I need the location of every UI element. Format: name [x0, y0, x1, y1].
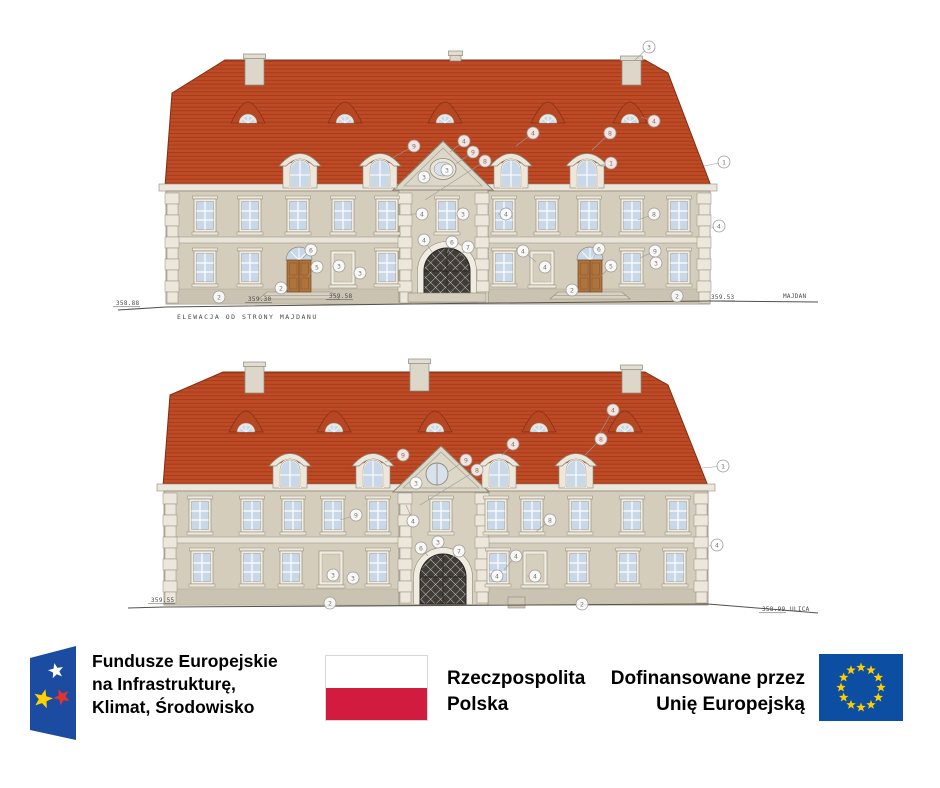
- window: [666, 248, 692, 287]
- callout-number: 9: [401, 451, 405, 459]
- callout-number: 4: [514, 552, 518, 560]
- chimney-cap: [244, 54, 266, 59]
- window: [192, 196, 218, 235]
- window: [189, 548, 215, 587]
- callout-number: 4: [504, 210, 508, 218]
- window: [619, 196, 645, 235]
- window: [565, 548, 591, 587]
- callout-number: 1: [722, 158, 726, 166]
- callout-number: 3: [351, 574, 355, 582]
- callout-number: 4: [411, 517, 415, 525]
- window: [237, 196, 263, 235]
- callout-number: 1: [721, 462, 725, 470]
- chimney-cap: [621, 56, 643, 61]
- callout-number: 9: [354, 511, 358, 519]
- callout-number: 3: [445, 166, 449, 174]
- callout-number: 3: [331, 571, 335, 579]
- poland-flag: [325, 655, 428, 721]
- funding-logos-bar: Fundusze Europejskie na Infrastrukturę, …: [0, 632, 940, 788]
- callout-number: 9: [471, 148, 475, 156]
- callout-number: 4: [495, 572, 499, 580]
- window: [662, 548, 688, 587]
- window: [285, 196, 311, 235]
- callout-number: 4: [531, 129, 535, 137]
- callout-number: 4: [652, 117, 656, 125]
- elevation-mark: 359.53: [711, 294, 735, 301]
- window: [434, 196, 460, 235]
- callout-number: 3: [414, 479, 418, 487]
- window: [320, 496, 346, 535]
- window: [615, 548, 641, 587]
- window: [330, 196, 356, 235]
- basement-opening: [508, 597, 525, 608]
- window: [519, 496, 545, 535]
- chimney: [245, 366, 264, 393]
- callout-number: 8: [483, 157, 487, 165]
- callout-number: 3: [358, 269, 362, 277]
- callout-number: 6: [419, 544, 423, 552]
- callout-number: 3: [436, 538, 440, 546]
- elevation-bottom: [128, 372, 818, 613]
- callout-number: 2: [279, 284, 283, 292]
- chimney: [410, 363, 429, 391]
- eu-flag: [819, 654, 903, 721]
- callout-number: 4: [420, 210, 424, 218]
- window: [665, 496, 691, 535]
- window: [666, 196, 692, 235]
- elevation-mark: MAJDAN: [783, 293, 807, 300]
- callout-number: 7: [466, 243, 470, 251]
- callout-number: 8: [548, 516, 552, 524]
- elevation-mark: 359.58: [329, 293, 353, 300]
- window: [187, 496, 213, 535]
- chimney-cap: [449, 51, 463, 56]
- callout-number: 5: [609, 262, 613, 270]
- fe-flag-shape: [30, 646, 76, 740]
- fe-logo-line: na Infrastrukturę,: [92, 673, 322, 696]
- window: [239, 496, 265, 535]
- eu-funding-line: Unię Europejską: [598, 692, 805, 718]
- window: [428, 496, 454, 535]
- callout-number: 3: [647, 43, 651, 51]
- window: [534, 196, 560, 235]
- callout-number: 3: [461, 210, 465, 218]
- callout-number: 4: [462, 137, 466, 145]
- callout-number: 4: [715, 541, 719, 549]
- drawing-caption: ELEWACJA OD STRONY MAJDANU: [177, 313, 318, 321]
- window: [239, 548, 265, 587]
- callout-number: 4: [543, 263, 547, 271]
- callout-number: 3: [422, 173, 426, 181]
- elevation-drawings: 3149498334814434676533224844659322358.88…: [0, 0, 940, 632]
- callout-number: 4: [717, 222, 721, 230]
- window: [567, 496, 593, 535]
- eu-funding-line: Dofinansowane przez: [598, 666, 805, 692]
- window: [619, 248, 645, 287]
- quoins: [697, 193, 711, 303]
- callout-number: 4: [521, 247, 525, 255]
- window: [365, 548, 391, 587]
- callout-number: 5: [315, 263, 319, 271]
- fe-logo-text: Fundusze Europejskie na Infrastrukturę, …: [92, 650, 322, 719]
- callout-number: 6: [450, 238, 454, 246]
- window: [278, 548, 304, 587]
- callout-number: 8: [652, 210, 656, 218]
- callout-number: 4: [611, 406, 615, 414]
- window: [619, 496, 645, 535]
- chimney-cap: [621, 365, 643, 370]
- chimney: [622, 60, 641, 85]
- quoins: [165, 193, 179, 303]
- callout-number: 4: [422, 236, 426, 244]
- callout-number: 3: [654, 259, 658, 267]
- chimney: [450, 55, 461, 61]
- elevation-mark: 358.88: [116, 300, 140, 307]
- poland-text-line: Polska: [447, 692, 617, 718]
- window: [483, 496, 509, 535]
- entrance-step: [408, 293, 486, 302]
- window: [374, 196, 400, 235]
- callout-number: 9: [464, 456, 468, 464]
- callout-number: 9: [412, 142, 416, 150]
- chimney: [245, 58, 264, 85]
- poland-flag-white: [326, 656, 427, 688]
- poland-flag-red: [326, 688, 427, 720]
- fe-logo-line: Fundusze Europejskie: [92, 650, 322, 673]
- quoins: [694, 493, 708, 603]
- poland-text-line: Rzeczpospolita: [447, 666, 617, 692]
- callout-number: 2: [675, 292, 679, 300]
- callout-number: 2: [328, 599, 332, 607]
- window: [237, 248, 263, 287]
- fe-logo-flag: [30, 646, 77, 740]
- window: [280, 496, 306, 535]
- poster: 3149498334814434676533224844659322358.88…: [0, 0, 940, 788]
- window: [576, 196, 602, 235]
- window: [365, 496, 391, 535]
- chimney-cap: [244, 362, 266, 367]
- quoins: [163, 493, 177, 603]
- callout-number: 7: [457, 547, 461, 555]
- elevation-mark: ULICA: [790, 606, 810, 613]
- elevation-top: [118, 60, 818, 310]
- callout-number: 1: [609, 159, 613, 167]
- window: [192, 248, 218, 287]
- window: [491, 248, 517, 287]
- callout-number: 2: [580, 600, 584, 608]
- elevation-mark: 359.55: [151, 597, 175, 604]
- chimney-cap: [409, 359, 431, 364]
- poland-text: Rzeczpospolita Polska: [447, 666, 617, 718]
- callout-number: 2: [217, 293, 221, 301]
- callout-number: 8: [475, 466, 479, 474]
- callout-number: 6: [309, 246, 313, 254]
- callout-number: 6: [597, 245, 601, 253]
- blind-niche: [521, 551, 549, 588]
- callout-number: 3: [337, 262, 341, 270]
- quoins: [475, 193, 489, 303]
- chimney: [622, 369, 641, 393]
- callout-number: 2: [570, 286, 574, 294]
- elevation-mark: 359.30: [248, 296, 272, 303]
- elevation-mark: 358.99: [762, 606, 786, 613]
- callout-number: 8: [608, 129, 612, 137]
- callout-number: 8: [599, 435, 603, 443]
- quoins: [398, 493, 412, 603]
- window: [374, 248, 400, 287]
- callout-number: 4: [533, 572, 537, 580]
- fe-logo-line: Klimat, Środowisko: [92, 696, 322, 719]
- callout-number: 9: [653, 247, 657, 255]
- eu-funding-text: Dofinansowane przez Unię Europejską: [598, 666, 805, 718]
- callout-number: 4: [511, 440, 515, 448]
